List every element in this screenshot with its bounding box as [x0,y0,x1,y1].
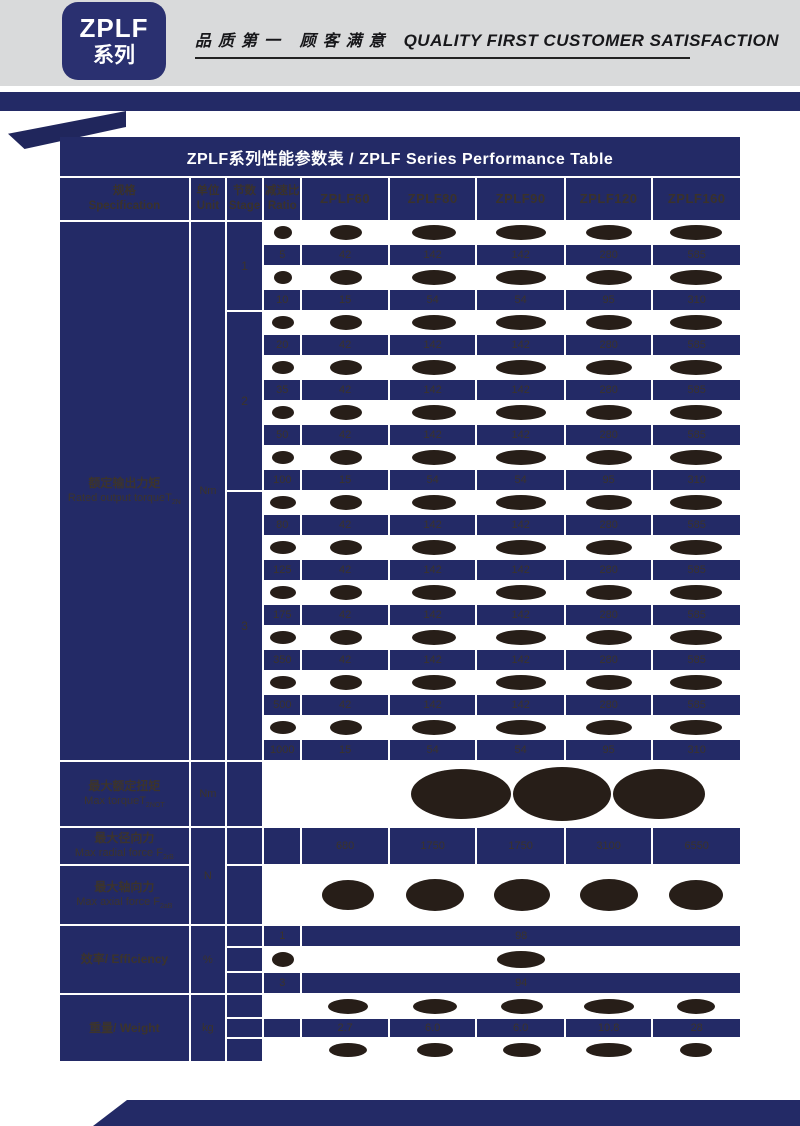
torque-value-cell: 142 [390,335,476,355]
redaction-blob [272,451,294,464]
torque-value-cell: 280 [566,425,652,445]
redaction-blob [272,316,294,329]
redaction-blob [670,630,722,645]
redaction-blob [586,270,632,285]
torque-value-cell: 280 [566,380,652,400]
column-header-model: ZPLF80 [390,178,476,220]
stage-cell-empty [227,1019,262,1037]
redaction-blob [406,879,464,911]
radial-force-row: 最大径向力Max radial force F2rBN6801750175031… [60,828,740,864]
model-name: ZPLF80 [390,191,476,208]
header-row: 规格Specification单位Unit节数Stage减速比RatioZPLF… [60,178,740,220]
redaction-blob [586,1043,632,1057]
torque-value-cell: 142 [390,380,476,400]
label-subscript: 2NOT [146,802,165,809]
redaction-blob [670,585,722,600]
torque-value-cell: 54 [477,470,564,490]
redaction-blob [670,675,722,690]
slogan-english: QUALITY FIRST CUSTOMER SATISFACTION [404,31,779,50]
torque-value-cell: 280 [566,650,652,670]
ratio-cell: 50 [264,425,300,445]
label-cn: 额定输出力矩 [60,475,189,492]
ratio-cell: 175 [264,605,300,625]
torque-value-cell: 42 [302,425,388,445]
redaction-blob [501,999,543,1014]
redaction-blob [670,270,722,285]
redaction-blob [677,999,715,1014]
redaction-blob [412,630,456,645]
redaction-blob [496,360,546,375]
efficiency-value-cell: 94 [302,973,740,993]
redaction-blob [586,225,632,240]
axial-redacted-cell [264,866,740,924]
radial-force-value-cell: 1750 [390,828,476,864]
redacted-grid [264,585,740,600]
redacted-values-cell [264,402,740,423]
redaction-blob [670,405,722,420]
torque-value-cell: 54 [477,740,564,760]
label-cn: 最大轴向力 [60,879,189,896]
redaction-blob [586,405,632,420]
torque-value-cell: 585 [653,650,740,670]
torque-value-cell: 142 [477,515,564,535]
section-label-radial-force: 最大径向力Max radial force F2rB [60,828,189,864]
redaction-blob [413,999,457,1014]
bottom-accent-band [93,1100,800,1126]
table-title: ZPLF系列性能参数表 / ZPLF Series Performance Ta… [60,137,740,176]
torque-value-cell: 42 [302,245,388,265]
column-header-spec: 规格Specification [60,178,189,220]
redaction-blob [412,405,456,420]
redaction-blob [412,585,456,600]
redacted-grid [304,879,740,911]
redaction-blob [586,630,632,645]
redaction-blob [494,879,550,911]
redacted-grid [264,951,740,968]
label-en: Max axial force F2aB [60,896,189,912]
redaction-blob [670,360,722,375]
redacted-values-cell [264,222,740,243]
ratio-cell: 500 [264,695,300,715]
efficiency-value-cell: 98 [302,926,740,946]
torque-value-cell: 142 [390,695,476,715]
efficiency-row: 效率/ Efficiency%198 [60,926,740,946]
efficiency-stage-cell: 1 [264,926,300,946]
redaction-blob [412,270,456,285]
stage-cell: 1 [227,222,262,310]
torque-value-cell: 54 [390,740,476,760]
torque-value-cell: 310 [653,290,740,310]
redaction-blob [412,315,456,330]
max-torque-redacted-cell [264,762,740,826]
header-en: Specification [60,199,189,214]
header-cn: 单位 [191,184,225,199]
redaction-blob [330,585,362,600]
redaction-blob [270,721,296,734]
model-name: ZPLF60 [302,191,388,208]
torque-value-cell: 142 [477,425,564,445]
weight-redacted-cell [264,1039,740,1061]
column-header-stage: 节数Stage [227,178,262,220]
redacted-values-cell [264,717,740,738]
stage-cell-empty [227,948,262,971]
slogan-underline [195,57,690,59]
label-en: Max torqueT2NOT [60,795,189,811]
redaction-blob [496,630,546,645]
performance-table-wrap: ZPLF系列性能参数表 / ZPLF Series Performance Ta… [58,137,742,1063]
torque-value-cell: 95 [566,740,652,760]
unit-cell-nm: Nm [191,222,225,760]
catalog-page: ZPLF 系列 品质第一 顾客满意QUALITY FIRST CUSTOMER … [0,0,800,1126]
redacted-grid [304,999,740,1014]
redaction-blob [586,450,632,465]
torque-value-cell: 585 [653,605,740,625]
model-name: ZPLF120 [566,191,652,208]
torque-value-cell: 585 [653,560,740,580]
redacted-grid [304,1043,740,1057]
torque-value-cell: 280 [566,695,652,715]
torque-value-cell: 142 [477,560,564,580]
redaction-blob [586,360,632,375]
header-en: Unit [191,199,225,214]
torque-value-cell: 142 [477,695,564,715]
redaction-blob [329,1043,367,1057]
stage-cell-empty [227,973,262,993]
redaction-blob [669,880,723,910]
torque-value-cell: 142 [390,560,476,580]
stage-cell: 2 [227,312,262,490]
redaction-blob [670,495,722,510]
torque-value-cell: 42 [302,335,388,355]
redacted-grid [264,405,740,420]
label-en: Rated output torqueT2N [60,492,189,508]
redaction-blob [417,1043,453,1057]
torque-value-cell: 310 [653,740,740,760]
label-subscript: 2N [172,499,181,506]
redacted-values-cell [264,627,740,648]
redaction-blob [586,675,632,690]
unit-cell-kg: kg [191,995,225,1061]
redaction-blob [580,879,638,911]
section-label-weight: 重量/ Weight [60,995,189,1061]
redacted-values-cell [264,447,740,468]
redaction-blob [330,270,362,285]
radial-force-value-cell: 680 [302,828,388,864]
redaction-blob [412,720,456,735]
torque-value-cell: 310 [653,470,740,490]
unit-cell-percent: % [191,926,225,993]
stage-cell-empty [227,762,262,826]
radial-force-value-cell: 1750 [477,828,564,864]
torque-value-cell: 585 [653,515,740,535]
model-name: ZPLF90 [477,191,564,208]
torque-value-cell: 585 [653,425,740,445]
torque-value-cell: 142 [477,605,564,625]
torque-value-cell: 15 [302,290,388,310]
unit-cell-n: N [191,828,225,924]
torque-value-cell: 42 [302,605,388,625]
redacted-grid [264,540,740,555]
ratio-cell: 80 [264,515,300,535]
redaction-blob [496,675,546,690]
redacted-grid [264,315,740,330]
redaction-blob [496,315,546,330]
torque-value-cell: 54 [390,470,476,490]
redaction-blob [322,880,374,910]
top-accent-band [0,92,800,111]
torque-value-cell: 142 [390,605,476,625]
redaction-blob [670,720,722,735]
redaction-blob [330,450,362,465]
axial-force-row: 最大轴向力Max axial force F2aB [60,866,740,924]
torque-value-cell: 42 [302,515,388,535]
redaction-blob [496,405,546,420]
header-en: Stage [227,199,262,214]
redaction-blob [330,495,362,510]
weight-value-cell: 28 [653,1019,740,1037]
redaction-blob [330,405,362,420]
series-badge: ZPLF 系列 [62,2,166,80]
weight-value-cell: 10.8 [566,1019,652,1037]
section-label-rated-torque: 额定输出力矩Rated output torqueT2N [60,222,189,760]
redaction-blob [412,360,456,375]
redaction-blob [496,540,546,555]
slogan: 品质第一 顾客满意QUALITY FIRST CUSTOMER SATISFAC… [195,27,779,51]
redacted-grid [264,675,740,690]
redaction-blob [586,720,632,735]
redaction-blob [274,271,292,284]
redaction-blob [328,999,368,1014]
redacted-values-cell [264,357,740,378]
redaction-blob [670,315,722,330]
torque-value-cell: 142 [477,380,564,400]
torque-value-cell: 42 [302,560,388,580]
redaction-blob [330,630,362,645]
redaction-blob [496,270,546,285]
redacted-values-cell [264,582,740,603]
redaction-blob [270,676,296,689]
redaction-blob [330,720,362,735]
efficiency-redacted-cell [264,948,740,971]
performance-table: 规格Specification单位Unit节数Stage减速比RatioZPLF… [58,176,742,1063]
header-cn: 减速比 [264,184,300,199]
redaction-blob [670,540,722,555]
redaction-blob [586,585,632,600]
torque-value-cell: 54 [390,290,476,310]
weight-redacted-cell [264,995,740,1017]
torque-value-cell: 585 [653,245,740,265]
torque-value-cell: 142 [477,335,564,355]
redaction-blob [412,450,456,465]
redaction-blob [670,225,722,240]
torque-value-cell: 54 [477,290,564,310]
redaction-blob [270,586,296,599]
redacted-values-cell [264,537,740,558]
weight-value-cell: 2.7 [302,1019,388,1037]
redacted-values-cell [264,672,740,693]
redaction-blob [274,226,292,239]
redaction-blob [513,767,611,821]
redacted-grid [264,495,740,510]
model-name: ZPLF160 [653,191,740,208]
column-header-unit: 单位Unit [191,178,225,220]
redacted-grid [264,270,740,285]
torque-value-cell: 142 [477,245,564,265]
section-label-efficiency: 效率/ Efficiency [60,926,189,993]
redaction-blob [330,540,362,555]
weight-value-cell: 6.0 [390,1019,476,1037]
header-en: Ratio [264,199,300,214]
stage-cell-empty [227,828,262,864]
stage-cell-empty [227,995,262,1017]
column-header-model: ZPLF60 [302,178,388,220]
column-header-model: ZPLF160 [653,178,740,220]
torque-value-cell: 142 [390,425,476,445]
torque-value-cell: 15 [302,470,388,490]
section-label-axial-force: 最大轴向力Max axial force F2aB [60,866,189,924]
redaction-blob [496,585,546,600]
redaction-blob [411,769,511,819]
redaction-blob [613,769,705,819]
weight-row: 重量/ Weightkg [60,995,740,1017]
redaction-blob [586,315,632,330]
ratio-cell: 100 [264,470,300,490]
label-subscript: 2rB [163,854,174,861]
ratio-cell-empty [264,1019,300,1037]
torque-value-cell: 280 [566,335,652,355]
redaction-blob [496,495,546,510]
badge-series-name: ZPLF [62,14,166,44]
ratio-cell: 5 [264,245,300,265]
torque-value-cell: 42 [302,650,388,670]
redacted-values-cell [264,312,740,333]
label-en: Max radial force F2rB [60,847,189,863]
label-subscript: 2aB [160,903,172,910]
redaction-blob [496,450,546,465]
redaction-blob [496,720,546,735]
redacted-values-cell [264,492,740,513]
torque-value-cell: 280 [566,560,652,580]
redaction-blob [330,315,362,330]
redacted-grid [264,360,740,375]
redaction-blob [270,496,296,509]
redacted-big-blobs [264,767,740,821]
radial-force-value-cell: 3100 [566,828,652,864]
torque-value-cell: 142 [390,515,476,535]
ratio-cell: 35 [264,380,300,400]
redaction-blob [412,495,456,510]
redaction-blob [330,675,362,690]
max-torque-row: 最大额定扭矩Max torqueT2NOTNm [60,762,740,826]
torque-value-cell: 95 [566,290,652,310]
torque-value-cell: 585 [653,695,740,715]
efficiency-stage-cell: 3 [264,973,300,993]
ratio-cell: 1000 [264,740,300,760]
stage-cell-empty [227,1039,262,1061]
torque-value-cell: 280 [566,515,652,535]
torque-value-cell: 142 [390,650,476,670]
radial-force-value-cell: 6550 [653,828,740,864]
badge-series-suffix: 系列 [62,44,166,68]
redaction-blob [270,541,296,554]
redaction-blob [584,999,634,1014]
torque-value-cell: 280 [566,245,652,265]
column-header-model: ZPLF90 [477,178,564,220]
torque-value-cell: 585 [653,335,740,355]
redacted-grid [264,720,740,735]
stage-cell: 3 [227,492,262,760]
ratio-cell: 350 [264,650,300,670]
redacted-grid [264,450,740,465]
header-cn: 节数 [227,184,262,199]
redaction-blob [412,675,456,690]
unit-cell-nm: Nm [191,762,225,826]
torque-value-cell: 142 [477,650,564,670]
redaction-blob [270,631,296,644]
column-header-ratio: 减速比Ratio [264,178,300,220]
redacted-values-cell [264,267,740,288]
redacted-grid [264,225,740,240]
ratio-cell: 20 [264,335,300,355]
column-header-model: ZPLF120 [566,178,652,220]
torque-value-cell: 42 [302,380,388,400]
redaction-blob [272,406,294,419]
torque-value-cell: 95 [566,470,652,490]
weight-value-cell: 6.0 [477,1019,564,1037]
redaction-blob [412,225,456,240]
ratio-cell: 125 [264,560,300,580]
redaction-blob [496,225,546,240]
redaction-blob [272,361,294,374]
stage-cell-empty [227,926,262,946]
torque-row-redacted: 额定输出力矩Rated output torqueT2NNm1 [60,222,740,243]
redaction-blob [497,951,545,968]
redaction-blob [503,1043,541,1057]
label-cn: 最大额定扭矩 [60,778,189,795]
redaction-blob [330,225,362,240]
redaction-blob [330,360,362,375]
torque-value-cell: 142 [390,245,476,265]
torque-value-cell: 585 [653,380,740,400]
label-cn: 最大径向力 [60,830,189,847]
section-label-max-torque: 最大额定扭矩Max torqueT2NOT [60,762,189,826]
redaction-blob [586,495,632,510]
redaction-blob [272,952,294,967]
ratio-cell-empty [264,828,300,864]
redaction-blob [670,450,722,465]
redaction-blob [680,1043,712,1057]
redaction-blob [412,540,456,555]
header-cn: 规格 [60,184,189,199]
redaction-blob [586,540,632,555]
ratio-cell: 10 [264,290,300,310]
redacted-grid [264,630,740,645]
torque-value-cell: 280 [566,605,652,625]
stage-cell-empty [227,866,262,924]
torque-value-cell: 15 [302,740,388,760]
slogan-chinese: 品质第一 顾客满意 [195,31,392,50]
torque-value-cell: 42 [302,695,388,715]
